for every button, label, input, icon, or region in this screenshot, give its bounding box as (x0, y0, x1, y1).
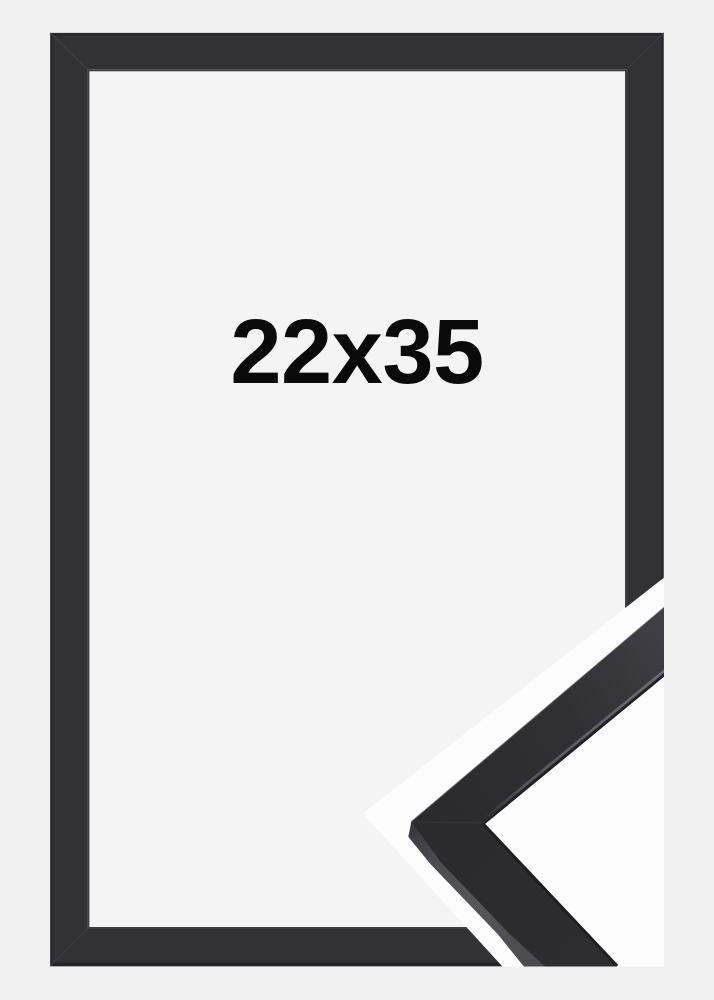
svg-text:22x35: 22x35 (230, 301, 483, 403)
